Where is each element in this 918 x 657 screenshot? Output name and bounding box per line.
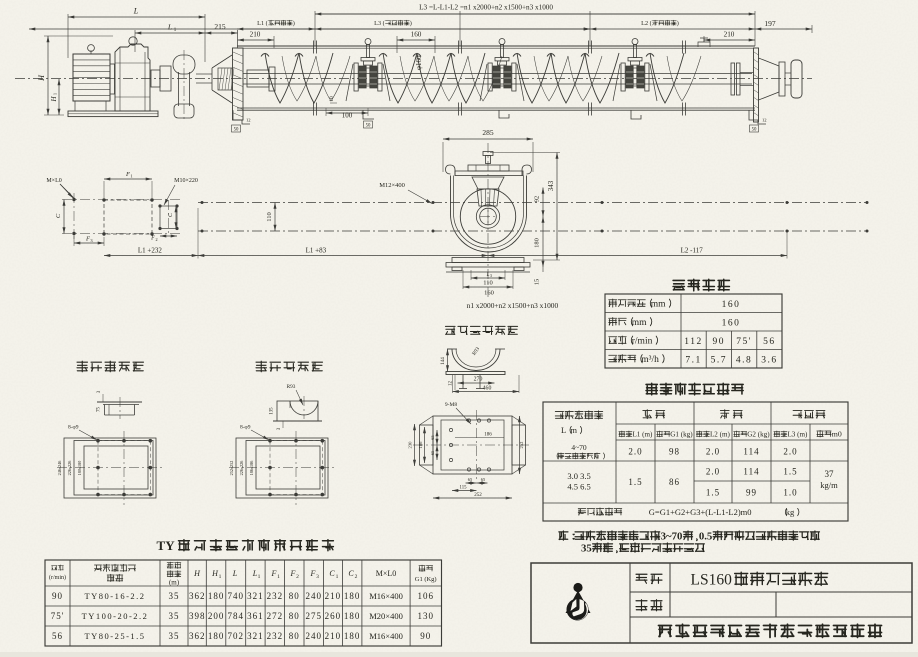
svg-text:1: 1 (277, 574, 280, 580)
svg-text:285: 285 (482, 128, 494, 137)
svg-text:TY80-16-2.2: TY80-16-2.2 (84, 591, 145, 601)
svg-text:1: 1 (53, 93, 58, 95)
svg-text:LS160: LS160 (691, 572, 733, 589)
svg-text:m: m (570, 425, 577, 435)
svg-text:(r/min): (r/min) (49, 574, 66, 581)
svg-text:35: 35 (169, 591, 180, 601)
svg-text:C: C (329, 569, 335, 578)
svg-text:144: 144 (440, 357, 446, 365)
svg-text:362: 362 (189, 591, 206, 601)
svg-text:321: 321 (247, 631, 264, 641)
svg-text:114: 114 (743, 447, 759, 457)
svg-text:F: F (150, 236, 155, 242)
svg-text:702: 702 (228, 631, 245, 641)
svg-text:1: 1 (258, 574, 261, 580)
svg-text:210: 210 (724, 31, 735, 39)
svg-text:106: 106 (418, 591, 435, 601)
svg-text:4.5 6.5: 4.5 6.5 (567, 482, 590, 492)
svg-text:90: 90 (420, 631, 431, 641)
svg-text:160: 160 (484, 290, 494, 297)
svg-text:230: 230 (408, 441, 413, 449)
svg-text:φ160: φ160 (415, 55, 423, 70)
svg-text:m0: m0 (832, 430, 842, 439)
svg-text:L: L (167, 23, 172, 32)
svg-text:35: 35 (581, 543, 592, 555)
svg-text:M10×220: M10×220 (174, 178, 198, 184)
svg-text:200: 200 (208, 611, 225, 621)
svg-text:1.5: 1.5 (628, 477, 642, 487)
svg-text:240: 240 (306, 591, 323, 601)
svg-text:L3 =L-L1-L2 =n1 x2000+n2 x1500: L3 =L-L1-L2 =n1 x2000+n2 x1500+n3 x1000 (419, 4, 553, 12)
svg-text:1: 1 (336, 574, 339, 580)
svg-text:2: 2 (155, 237, 157, 242)
svg-text:3: 3 (316, 574, 319, 580)
svg-text:398: 398 (189, 611, 206, 621)
svg-text:186: 186 (418, 441, 423, 449)
svg-text:(m): (m) (169, 579, 180, 587)
svg-text:75': 75' (736, 337, 752, 347)
svg-text:M16×400: M16×400 (369, 591, 403, 601)
svg-text:3: 3 (490, 274, 492, 278)
svg-text:mm: mm (632, 318, 647, 328)
svg-text:110: 110 (266, 212, 273, 222)
svg-text:1.0: 1.0 (783, 488, 797, 498)
svg-text:130: 130 (418, 611, 435, 621)
svg-text:784: 784 (228, 611, 245, 621)
svg-text:210: 210 (325, 631, 342, 641)
svg-text:180: 180 (534, 238, 541, 248)
svg-text:L1 (m): L1 (m) (632, 431, 653, 439)
svg-text:232: 232 (267, 591, 284, 601)
svg-text:240: 240 (306, 631, 323, 641)
svg-text:321: 321 (247, 591, 264, 601)
svg-text:114: 114 (743, 467, 759, 477)
svg-text:215: 215 (214, 22, 226, 31)
svg-text:2.0: 2.0 (628, 447, 642, 457)
svg-text:4~70: 4~70 (571, 443, 587, 452)
svg-text:kg: kg (786, 507, 795, 517)
svg-text:3.0 3.5: 3.0 3.5 (567, 471, 590, 481)
svg-text:160: 160 (411, 31, 422, 39)
svg-text:4.8: 4.8 (736, 356, 752, 366)
svg-text:115: 115 (459, 486, 467, 491)
svg-text:C: C (348, 569, 354, 578)
svg-text:2.0: 2.0 (706, 447, 720, 457)
svg-text:TY: TY (157, 538, 176, 553)
svg-text:246x246: 246x246 (57, 461, 62, 476)
svg-text:56: 56 (763, 337, 776, 347)
svg-text:343: 343 (547, 180, 555, 191)
svg-text:12: 12 (762, 118, 767, 123)
svg-text:270: 270 (474, 377, 483, 383)
svg-text:180: 180 (344, 631, 361, 641)
svg-text:210: 210 (325, 591, 342, 601)
svg-text:98: 98 (669, 447, 680, 457)
svg-text:1: 1 (219, 574, 222, 580)
svg-text:210: 210 (250, 31, 261, 39)
svg-text:226x226: 226x226 (67, 461, 72, 476)
svg-text:L2 (: L2 ( (641, 20, 651, 27)
svg-text:): ) (293, 20, 295, 27)
svg-text:50: 50 (234, 128, 239, 133)
svg-text:740: 740 (228, 591, 245, 601)
svg-text:180: 180 (344, 611, 361, 621)
svg-text:L: L (133, 7, 139, 16)
svg-text:L1 (: L1 ( (257, 20, 267, 27)
svg-text:226x226: 226x226 (239, 461, 244, 476)
svg-text:G2 (kg): G2 (kg) (747, 431, 770, 439)
svg-text:3.6: 3.6 (761, 356, 777, 366)
svg-text:L2 -117: L2 -117 (681, 246, 704, 254)
svg-text:L: L (561, 425, 566, 435)
svg-text:100: 100 (342, 112, 353, 120)
svg-text:F: F (310, 569, 316, 578)
svg-text:12: 12 (246, 118, 251, 123)
svg-text:G1 (kg): G1 (kg) (670, 431, 693, 439)
svg-text:M12×400: M12×400 (379, 182, 405, 189)
svg-text:112: 112 (684, 337, 702, 347)
svg-text:50: 50 (752, 128, 757, 133)
svg-text:186: 186 (484, 433, 492, 438)
svg-text:252x252: 252x252 (229, 461, 234, 476)
svg-text:9-M8: 9-M8 (445, 402, 457, 408)
svg-text:G1 (Kg): G1 (Kg) (415, 576, 437, 583)
svg-text:L2 (m): L2 (m) (710, 431, 731, 439)
svg-text:TY80-25-1.5: TY80-25-1.5 (84, 631, 145, 641)
svg-text:10: 10 (329, 96, 335, 102)
svg-text:R93: R93 (287, 384, 296, 390)
svg-text:mm: mm (651, 300, 666, 310)
svg-text:135: 135 (270, 407, 275, 415)
svg-text:75: 75 (97, 407, 102, 412)
svg-text:180: 180 (208, 591, 225, 601)
svg-text:35: 35 (169, 631, 180, 641)
svg-text:252: 252 (474, 493, 482, 498)
svg-text:110: 110 (483, 280, 493, 287)
svg-text:L: L (232, 569, 238, 578)
svg-text:r/min: r/min (632, 337, 653, 347)
svg-text:272: 272 (267, 611, 284, 621)
svg-text:L1 +83: L1 +83 (306, 246, 327, 254)
svg-text:1.5: 1.5 (706, 488, 720, 498)
svg-text:37: 37 (825, 469, 835, 479)
svg-text:L3 (: L3 ( (374, 20, 384, 27)
svg-text:m³/h: m³/h (641, 355, 659, 365)
svg-text:35: 35 (169, 611, 180, 621)
svg-text:F: F (271, 569, 277, 578)
svg-text:50: 50 (366, 124, 371, 129)
svg-text:460: 460 (483, 386, 492, 392)
svg-text:180x180: 180x180 (77, 461, 82, 476)
svg-text:160: 160 (722, 319, 741, 329)
svg-text:2: 2 (355, 574, 358, 580)
svg-text:): ) (677, 20, 679, 27)
svg-text:C: C (55, 213, 62, 218)
svg-text:86: 86 (669, 477, 680, 487)
svg-text:5.7: 5.7 (711, 356, 727, 366)
svg-text:TY100-20-2.2: TY100-20-2.2 (82, 611, 149, 621)
svg-text:252: 252 (519, 441, 524, 449)
svg-text:1.5: 1.5 (783, 467, 797, 477)
svg-text:8-φ9: 8-φ9 (240, 425, 251, 431)
svg-text:n1 x2000+n2 x1500+n3 x1000: n1 x2000+n2 x1500+n3 x1000 (467, 301, 559, 310)
svg-text:0.5: 0.5 (699, 531, 713, 543)
svg-text:80: 80 (289, 591, 300, 601)
svg-text:M×L0: M×L0 (46, 178, 61, 184)
svg-text:L1 +232: L1 +232 (138, 246, 162, 254)
svg-text:H: H (50, 96, 58, 103)
svg-text:362: 362 (189, 631, 206, 641)
svg-text:275: 275 (306, 611, 323, 621)
svg-text:99: 99 (746, 488, 757, 498)
svg-text:260: 260 (325, 611, 342, 621)
svg-text:90: 90 (52, 591, 63, 601)
svg-text:92: 92 (534, 196, 541, 203)
svg-text:G=G1+G2+G3+(L-L1-L2)m0: G=G1+G2+G3+(L-L1-L2)m0 (649, 507, 752, 517)
svg-text:2.0: 2.0 (706, 467, 720, 477)
svg-text:180: 180 (208, 631, 225, 641)
svg-text:F: F (290, 569, 296, 578)
svg-text:M×L0: M×L0 (376, 569, 397, 578)
svg-text:186x186: 186x186 (249, 461, 254, 476)
svg-text:L3 (m): L3 (m) (787, 431, 808, 439)
svg-text:3~70: 3~70 (661, 531, 683, 543)
svg-text:80: 80 (289, 631, 300, 641)
svg-text:75': 75' (51, 611, 65, 621)
svg-text:1: 1 (130, 174, 132, 179)
svg-text:L: L (486, 273, 490, 278)
svg-text:): ) (410, 20, 412, 27)
svg-text:90: 90 (713, 337, 726, 347)
svg-text:8-φ9: 8-φ9 (68, 425, 79, 431)
svg-text:160: 160 (722, 300, 741, 310)
svg-text:15: 15 (534, 279, 541, 286)
svg-text:56: 56 (52, 631, 63, 641)
svg-text:7.1: 7.1 (685, 356, 701, 366)
svg-text:180: 180 (344, 591, 361, 601)
svg-text:kg/m: kg/m (820, 480, 838, 490)
svg-text:361: 361 (247, 611, 264, 621)
svg-text:2.0: 2.0 (783, 447, 797, 457)
svg-text:197: 197 (764, 19, 776, 28)
svg-text:2: 2 (296, 574, 299, 580)
svg-text:80: 80 (289, 611, 300, 621)
svg-text:232: 232 (267, 631, 284, 641)
svg-text:M20×400: M20×400 (369, 611, 403, 621)
svg-text:M16×400: M16×400 (369, 631, 403, 641)
